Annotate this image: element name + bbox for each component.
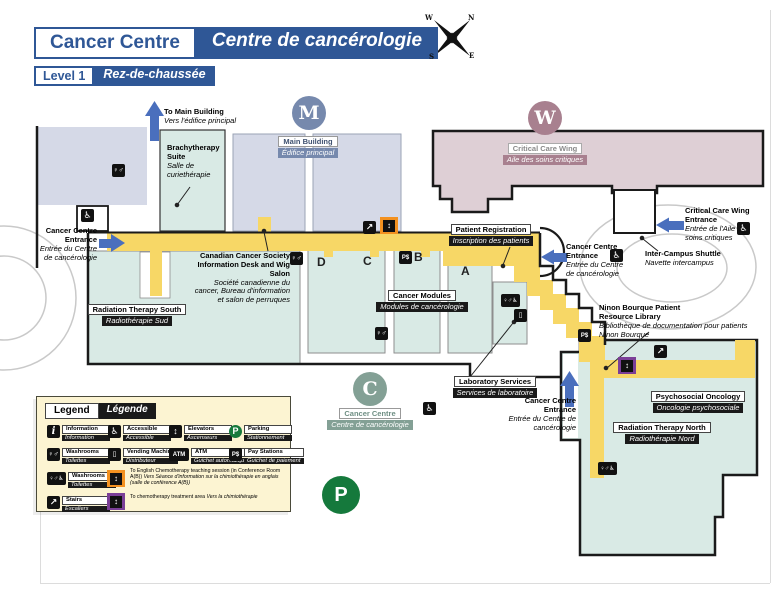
legend-item-pay-stations: P$ Pay StationsGuichet de paiement (229, 448, 304, 464)
accessible-washroom-icon: ♀♂♿ (501, 294, 520, 307)
title-french: Centre de cancérologie (196, 27, 438, 59)
accessible-icon: ♿ (108, 425, 121, 438)
compass-icon (434, 20, 470, 56)
compass-s: S (429, 52, 434, 61)
cancer-modules-label: Cancer Modules Modules de cancérologie (372, 290, 472, 312)
corridor-a: A (461, 264, 470, 278)
level-english: Level 1 (34, 66, 94, 86)
patient-registration-label: Patient Registration Inscription des pat… (448, 224, 534, 246)
chemo-teaching-elevator-icon: ↕ (107, 470, 125, 487)
chemo-treatment-elevator-icon: ↕ (107, 493, 125, 510)
psychosocial-label: Psychosocial Oncology Oncologie psychoso… (640, 391, 756, 413)
legend-title: Legend Légende (45, 403, 156, 419)
legend-item-washrooms-accessible: ♀♂♿ WashroomsToilettes (47, 472, 116, 488)
accessible-washroom-icon: ♀♂♿ (598, 462, 617, 475)
laboratory-label: Laboratory Services Services de laborato… (450, 376, 540, 398)
critical-care-label: Critical Care Wing Aile des soins critiq… (495, 143, 595, 165)
page-title: Cancer Centre Centre de cancérologie (34, 27, 438, 59)
title-english: Cancer Centre (34, 27, 196, 59)
legend-item-washrooms: ♀♂ WashroomsToilettes (47, 448, 110, 464)
accessible-icon: ♿ (423, 402, 436, 415)
stairs-icon: ↗ (47, 496, 60, 509)
radiation-north-label: Radiation Therapy North Radiothérapie No… (606, 422, 718, 444)
pay-station-icon: P$ (399, 251, 412, 264)
critical-care-wing-shape (433, 131, 763, 212)
washroom-icon: ♀♂ (290, 252, 303, 265)
parking-icon: P (229, 425, 242, 438)
vending-machine-icon: ▯ (108, 448, 121, 461)
information-icon: i (47, 425, 60, 438)
pay-station-icon: P$ (578, 329, 591, 342)
south-entrance-label: Cancer Centre Entrance Entrée du Centre … (500, 397, 576, 432)
ccw-vestibule (614, 190, 655, 233)
to-main-building-label: To Main Building Vers l'édifice principa… (164, 108, 242, 126)
vending-machine-icon: ▯ (514, 309, 527, 322)
west-entrance-label: Cancer Centre Entrance Entrée du Centre … (30, 227, 97, 262)
compass-e: E (469, 51, 474, 60)
legend-note-chemo-teaching: To English Chemotherapy teaching session… (130, 469, 290, 487)
brachytherapy-label: Brachytherapy Suite Salle de curiethérap… (167, 144, 223, 179)
main-building-west-area (37, 127, 147, 205)
chemo-treatment-elevator-icon: ↕ (618, 357, 636, 374)
corridor-c: C (363, 254, 372, 268)
washroom-icon: ♀♂ (47, 448, 60, 461)
floor-plan-page: Cancer Centre Centre de cancérologie Lev… (0, 0, 776, 600)
corridor-b: B (414, 250, 423, 264)
main-building-label: Main Building Édifice principal (256, 136, 360, 158)
washroom-icon: ♀♂ (375, 327, 388, 340)
legend-item-elevators: ↕ ElevatorsAscenseurs (169, 425, 232, 441)
shuttle-label: Inter-Campus Shuttle Navette intercampus (645, 250, 730, 268)
elevator-icon: ↕ (169, 425, 182, 438)
washroom-icon: ♀♂ (112, 164, 125, 177)
parking-marker: P (322, 476, 360, 514)
library-label: Ninon Bourque Patient Resource Library B… (599, 304, 761, 339)
compass-n: N (468, 13, 474, 22)
legend: Legend Légende i InformationInformation … (36, 396, 291, 512)
legend-note-chemo-treatment-icon: ↕ (107, 493, 125, 510)
pay-station-icon: P$ (229, 448, 242, 461)
corridor-d: D (317, 255, 326, 269)
legend-item-parking: P ParkingStationnement (229, 425, 292, 441)
critical-care-marker: W (528, 101, 562, 135)
main-building-marker: M (292, 96, 326, 130)
legend-item-stairs: ↗ StairsEscaliers (47, 496, 110, 512)
accessible-icon: ♿ (737, 222, 750, 235)
compass-w: W (425, 13, 433, 22)
legend-item-information: i InformationInformation (47, 425, 110, 441)
level-french: Rez-de-chaussée (94, 66, 214, 86)
accessible-washroom-icon: ♀♂♿ (47, 472, 66, 485)
accessible-icon: ♿ (610, 249, 623, 262)
level-indicator: Level 1 Rez-de-chaussée (34, 66, 215, 86)
radiation-south-label: Radiation Therapy South Radiothérapie Su… (92, 304, 182, 326)
legend-item-accessible: ♿ AccessibleAccessible (108, 425, 171, 441)
atm-icon: ATM (169, 448, 189, 461)
legend-note-chemo-treatment: To chemotherapy treatment area Vers la c… (130, 495, 290, 501)
legend-item-vending: ▯ Vending MachineDistributeur (108, 448, 178, 464)
cancer-centre-label: Cancer Centre Centre de cancérologie (320, 408, 420, 430)
stairs-icon: ↗ (654, 345, 667, 358)
chemo-teaching-elevator-icon: ↕ (380, 217, 398, 234)
accessible-icon: ♿ (81, 209, 94, 222)
cancer-society-label: Canadian Cancer Society Information Desk… (193, 252, 290, 305)
legend-note-chemo-teaching-icon: ↕ (107, 470, 125, 487)
cancer-centre-marker: C (353, 372, 387, 406)
stairs-icon: ↗ (363, 221, 376, 234)
